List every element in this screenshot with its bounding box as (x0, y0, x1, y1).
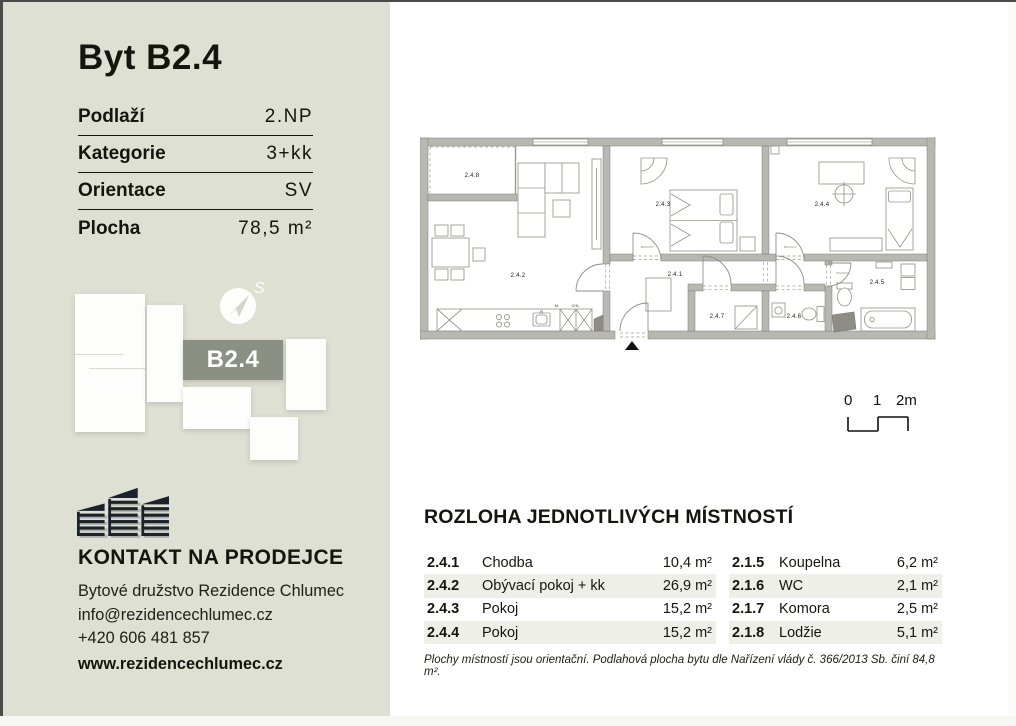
room-name: Pokoj (482, 601, 644, 617)
room-area: 10,4 m² (644, 555, 716, 571)
room-area: 2,5 m² (870, 601, 942, 617)
room-area: 15,2 m² (644, 625, 716, 641)
room-label-241: 2.4.1 (668, 272, 683, 278)
desk-symbol (819, 162, 864, 184)
spec-label: Podlaží (78, 106, 145, 128)
scale-tick-0: 0 (844, 392, 852, 409)
minimap-block (286, 339, 326, 410)
table-row: 2.1.6 WC 2,1 m² (729, 574, 942, 597)
coffee-table-symbol (553, 200, 570, 217)
table-row: 2.1.7 Komora 2,5 m² (729, 598, 942, 621)
kitchen-counter-symbol: M. CHL. (437, 303, 603, 331)
room-area: 5,1 m² (870, 625, 942, 641)
contact-block: Bytové družstvo Rezidence Chlumec info@r… (78, 580, 344, 676)
spec-row-area: Plocha 78,5 m² (78, 210, 313, 247)
footnote: Plochy místností jsou orientační. Podlah… (424, 654, 946, 678)
compass-letter: S (254, 280, 265, 297)
table-row: 2.4.2 Obývací pokoj + kk 26,9 m² (424, 574, 716, 597)
spec-row-category: Kategorie 3+kk (78, 136, 313, 173)
room-name: Koupelna (779, 555, 870, 571)
toilet-symbol (802, 307, 824, 322)
scale-tick-2m: 2m (896, 392, 917, 409)
dining-set-symbol (432, 225, 485, 280)
minimap-divider (75, 354, 123, 355)
hall-cabinet-symbol (646, 278, 671, 311)
bath-shelf-symbol (901, 264, 915, 276)
unit-badge: B2.4 (183, 340, 283, 380)
room-area: 6,2 m² (870, 555, 942, 571)
room-name: Chodba (482, 555, 644, 571)
spec-label: Orientace (78, 180, 166, 202)
spec-row-orientation: Orientace SV (78, 173, 313, 210)
apartment-factsheet-page: Byt B2.4 Podlaží 2.NP Kategorie 3+kk Ori… (0, 0, 1016, 726)
table-row: 2.1.5 Koupelna 6,2 m² (729, 551, 942, 574)
contact-company: Bytové družstvo Rezidence Chlumec (78, 580, 344, 604)
tv-cabinet-symbol (592, 159, 601, 249)
room-label-244: 2.4.4 (815, 202, 830, 208)
single-bed-symbol (886, 188, 913, 250)
minimap-block (75, 294, 145, 432)
minimap-divider (89, 368, 145, 369)
compass-icon: S (208, 276, 278, 332)
pedestal-sink-symbol (837, 283, 852, 306)
corner-wardrobe-symbol (641, 158, 667, 184)
minimap-block (147, 305, 183, 402)
room-name: Lodžie (779, 625, 870, 641)
page-edge-right (1008, 2, 1016, 716)
minimap-block (250, 417, 298, 460)
contact-heading: KONTAKT NA PRODEJCE (78, 546, 343, 570)
contact-website: www.rezidencechlumec.cz (78, 653, 344, 677)
spec-label: Plocha (78, 218, 140, 240)
room-label-247: 2.4.7 (710, 314, 725, 320)
door-size-label: 800/1970 (641, 245, 654, 249)
table-row: 2.4.4 Pokoj 15,2 m² (424, 621, 716, 644)
sideboard-symbol (830, 238, 882, 251)
door-size-label: 700/1970 (836, 271, 849, 275)
room-code: 2.1.8 (729, 625, 779, 641)
room-label-245: 2.4.5 (870, 280, 885, 286)
scale-bar: 0 1 2m (840, 390, 924, 438)
buildings-logo-icon (77, 480, 169, 538)
room-name: Komora (779, 601, 870, 617)
washer-label: M. (555, 303, 559, 308)
table-row: 2.4.3 Pokoj 15,2 m² (424, 598, 716, 621)
spec-value: 2.NP (265, 106, 313, 128)
scale-tick-1: 1 (873, 392, 881, 409)
room-name: WC (779, 578, 870, 594)
room-code: 2.4.4 (424, 625, 482, 641)
fridge-label: CHL. (571, 303, 580, 308)
page-edge-left (0, 0, 3, 716)
room-code: 2.4.1 (424, 555, 482, 571)
rooms-table-left: 2.4.1 Chodba 10,4 m² 2.4.2 Obývací pokoj… (424, 551, 716, 644)
spec-row-floor: Podlaží 2.NP (78, 99, 313, 136)
contact-phone: +420 606 481 857 (78, 627, 344, 651)
washbasin-symbol (772, 303, 785, 317)
room-code: 2.4.2 (424, 578, 482, 594)
rooms-section-heading: ROZLOHA JEDNOTLIVÝCH MÍSTNOSTÍ (424, 506, 793, 529)
room-name: Pokoj (482, 625, 644, 641)
spec-label: Kategorie (78, 143, 166, 165)
minimap-block (183, 387, 251, 429)
double-bed-symbol (670, 190, 755, 251)
room-label-246: 2.4.6 (787, 314, 802, 320)
corner-wardrobe-symbol (889, 158, 915, 184)
construction-dashes (606, 256, 831, 337)
bath-washer-symbol (832, 312, 856, 332)
contact-email: info@rezidencechlumec.cz (78, 604, 344, 628)
room-code: 2.1.6 (729, 578, 779, 594)
door-size-label: 800/1970 (784, 245, 797, 249)
unit-badge-label: B2.4 (207, 346, 260, 374)
bathtub-symbol (861, 308, 915, 331)
spec-value: 78,5 m² (238, 218, 313, 240)
entrance-arrow (625, 341, 639, 350)
ceiling-lamp-symbol (832, 182, 856, 206)
bath-shelf-symbol (901, 278, 915, 290)
room-code: 2.1.7 (729, 601, 779, 617)
room-area: 15,2 m² (644, 601, 716, 617)
room-area: 2,1 m² (870, 578, 942, 594)
washer-symbol (735, 306, 757, 329)
table-row: 2.1.8 Lodžie 5,1 m² (729, 621, 942, 644)
page-title: Byt B2.4 (78, 38, 222, 78)
spec-value: SV (285, 180, 313, 202)
rooms-table-right: 2.1.5 Koupelna 6,2 m² 2.1.6 WC 2,1 m² 2.… (729, 551, 942, 644)
table-row: 2.4.1 Chodba 10,4 m² (424, 551, 716, 574)
floor-plan: M. CHL. (420, 136, 942, 358)
sidebar: Byt B2.4 Podlaží 2.NP Kategorie 3+kk Ori… (3, 2, 390, 716)
room-label-248: 2.4.8 (465, 173, 480, 179)
room-label-242: 2.4.2 (511, 273, 526, 279)
room-area: 26,9 m² (644, 578, 716, 594)
room-code: 2.1.5 (729, 555, 779, 571)
room-name: Obývací pokoj + kk (482, 578, 644, 594)
spec-table: Podlaží 2.NP Kategorie 3+kk Orientace SV… (78, 99, 313, 247)
bath-shelf-symbol (876, 262, 892, 268)
spec-value: 3+kk (266, 143, 313, 165)
page-edge-bottom (0, 716, 1016, 726)
room-label-243: 2.4.3 (656, 202, 671, 208)
room-code: 2.4.3 (424, 601, 482, 617)
